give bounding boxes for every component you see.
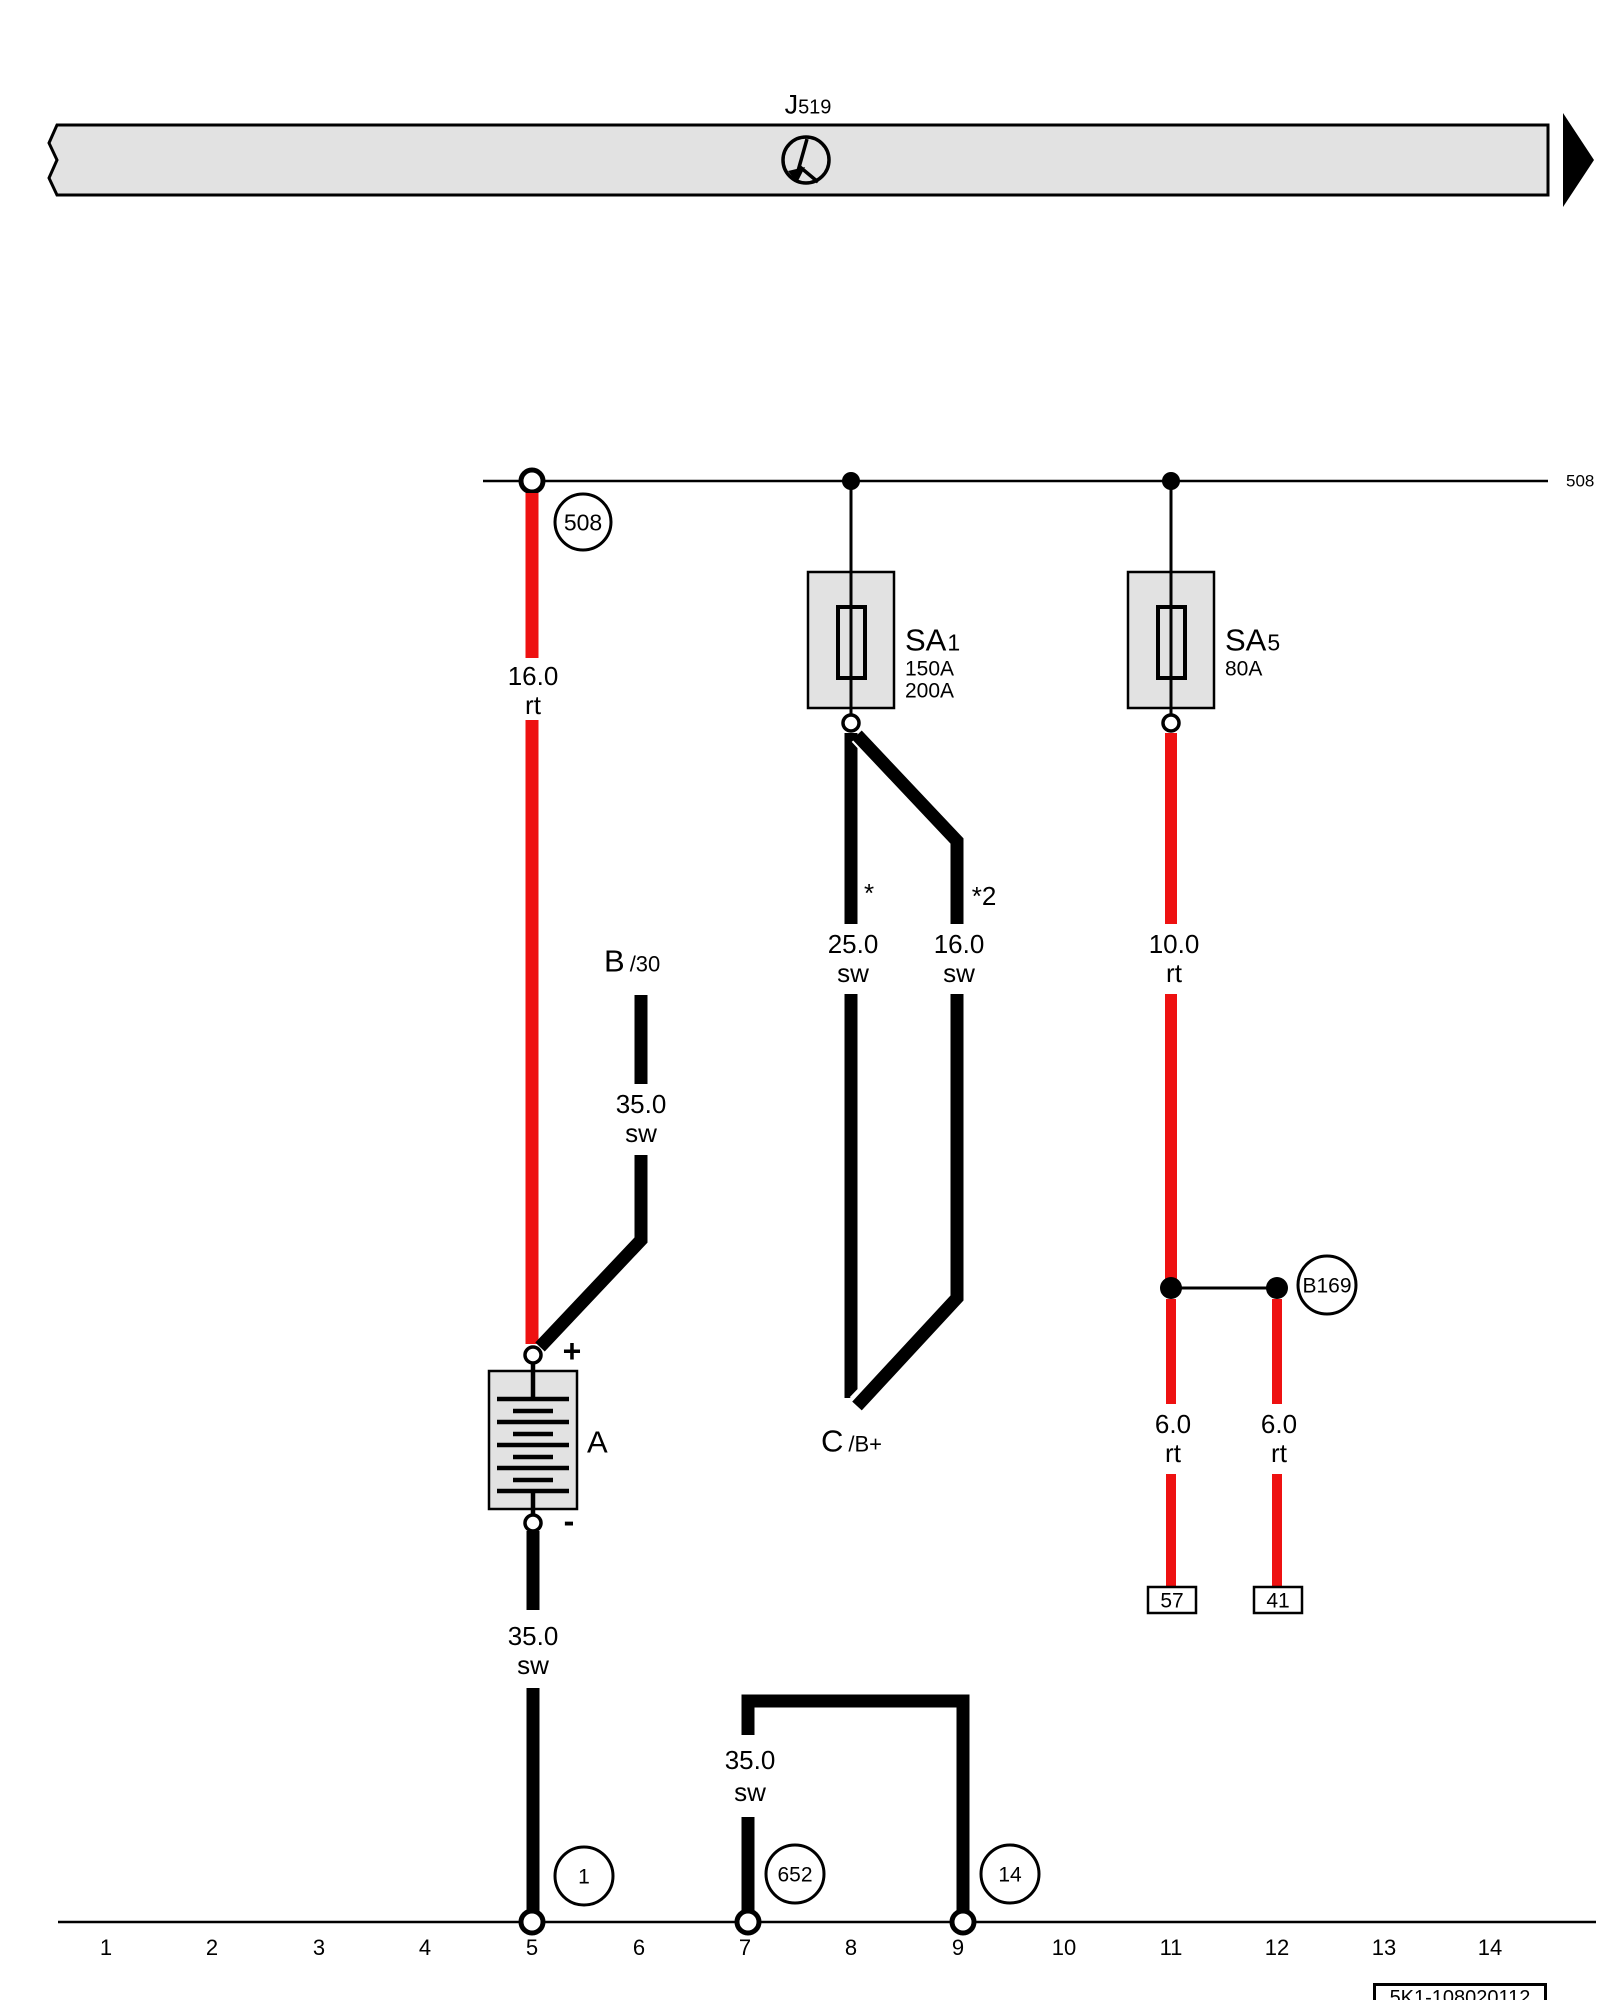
wire-label-6r-gauge: 6.0 — [1261, 1411, 1297, 1437]
ground-node-5 — [521, 1911, 543, 1933]
battery-minus-sign: - — [564, 1505, 575, 1537]
track-number: 14 — [1478, 1937, 1502, 1959]
wire-label-16sw-gauge: 16.0 — [934, 931, 985, 957]
circle-b169-label: B169 — [1302, 1276, 1351, 1297]
terminal-41-label: 41 — [1266, 1591, 1289, 1612]
circle-508-label: 508 — [564, 512, 602, 535]
battery-plus-sign: + — [563, 1335, 582, 1367]
terminal-c-name: C — [821, 1426, 843, 1457]
ground-node-7 — [737, 1911, 759, 1933]
wire-label-6l-gauge: 6.0 — [1155, 1411, 1191, 1437]
b169-node-right — [1266, 1277, 1288, 1299]
control-module-name: J — [785, 92, 799, 119]
wire-label-gnd-color: sw — [517, 1652, 549, 1678]
wire-label-10-color: rt — [1166, 960, 1182, 986]
wire-label-gnd-gauge: 35.0 — [508, 1623, 559, 1649]
diagram-code-box: 5K1-108020112 — [1373, 1983, 1547, 2000]
terminal-b30-label: B/30 — [604, 946, 660, 977]
wire-b30-35sw — [540, 995, 641, 1347]
current-track-continuation-arrow — [1563, 113, 1594, 207]
track-number: 13 — [1372, 1937, 1396, 1959]
wire-label-16-color: rt — [525, 692, 541, 718]
fuse-sa5-name: SA — [1225, 625, 1266, 656]
wire-label-b30-gauge: 35.0 — [616, 1091, 667, 1117]
wire-label-b30-color: sw — [625, 1120, 657, 1146]
track-number: 6 — [633, 1937, 645, 1959]
fuse-sa5-index: 5 — [1267, 632, 1280, 655]
terminal-c-sub: /B+ — [848, 1434, 882, 1456]
battery-minus-terminal — [525, 1515, 541, 1531]
wiring-diagram-page: J519 508 508 16.0 rt SA1 150A 200A SA5 8… — [0, 0, 1600, 2000]
fuse-sa1-name: SA — [905, 625, 946, 656]
fuse-sa5-label: SA5 — [1225, 625, 1280, 656]
track-number: 10 — [1052, 1937, 1076, 1959]
terminal-cbplus-label: C/B+ — [821, 1426, 882, 1457]
footnote-star2: *2 — [972, 883, 997, 909]
fuse-sa5-rating-1: 80A — [1225, 659, 1262, 680]
b169-node-left — [1160, 1277, 1182, 1299]
track-number: 7 — [739, 1937, 751, 1959]
track-number: 1 — [100, 1937, 112, 1959]
fuse-sa1-rating-1: 150A — [905, 659, 954, 680]
terminal-b-name: B — [604, 946, 625, 977]
wire-label-bridge-gauge: 35.0 — [725, 1747, 776, 1773]
footnote-star: * — [864, 880, 874, 906]
wire-label-6l-color: rt — [1165, 1440, 1181, 1466]
circle-1-label: 1 — [578, 1867, 590, 1888]
diagram-artwork — [0, 0, 1600, 2000]
wire-label-16sw-color: sw — [943, 960, 975, 986]
fuse-sa1-rating-2: 200A — [905, 681, 954, 702]
control-module-label: J519 — [785, 92, 832, 119]
fuse-sa5-terminal — [1163, 715, 1179, 731]
battery-plus-terminal — [525, 1347, 541, 1363]
wire-label-25-gauge: 25.0 — [828, 931, 879, 957]
track-number: 8 — [845, 1937, 857, 1959]
track-number: 4 — [419, 1937, 431, 1959]
rail-node-battery — [521, 470, 543, 492]
rail-label-508: 508 — [1566, 473, 1594, 490]
fuse-sa1-label: SA1 — [905, 625, 960, 656]
track-number: 12 — [1265, 1937, 1289, 1959]
control-module-bar — [49, 125, 1548, 195]
fuse-sa1-terminal — [843, 715, 859, 731]
wire-sa1-16sw-casing — [857, 735, 957, 1404]
track-number: 5 — [526, 1937, 538, 1959]
track-number: 3 — [313, 1937, 325, 1959]
wire-label-25-color: sw — [837, 960, 869, 986]
control-module-name-sub: 519 — [798, 98, 831, 118]
track-number: 2 — [206, 1937, 218, 1959]
ground-node-9 — [952, 1911, 974, 1933]
terminal-b-sub: /30 — [630, 954, 661, 976]
diagram-code: 5K1-108020112 — [1390, 1987, 1531, 2000]
battery-label: A — [587, 1427, 608, 1458]
fuse-sa1-index: 1 — [947, 632, 960, 655]
track-number: 9 — [952, 1937, 964, 1959]
track-number: 11 — [1160, 1937, 1183, 1959]
wire-label-16-gauge: 16.0 — [508, 663, 559, 689]
wire-label-6r-color: rt — [1271, 1440, 1287, 1466]
wire-label-bridge-color: sw — [734, 1779, 766, 1805]
circle-652-label: 652 — [777, 1865, 812, 1886]
terminal-57-label: 57 — [1160, 1591, 1183, 1612]
wire-label-10-gauge: 10.0 — [1149, 931, 1200, 957]
circle-14-label: 14 — [998, 1865, 1021, 1886]
